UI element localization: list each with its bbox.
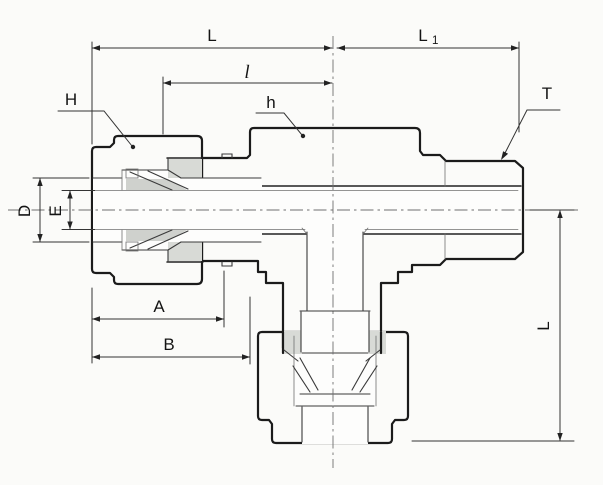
dim-label-L1-subscript: 1	[432, 35, 438, 47]
dim-label-l-inner: l	[244, 62, 249, 83]
dim-label-D: D	[15, 205, 34, 217]
branch-exit-bore	[302, 404, 368, 444]
dim-label-L-top: L	[207, 26, 216, 45]
body-neck-bottom	[168, 242, 202, 261]
leader-dot-H	[131, 145, 135, 149]
tee-fitting-drawing: L l L 1 H h T D	[0, 0, 603, 485]
dim-label-B: B	[163, 335, 174, 354]
branch-bore-hole	[307, 228, 363, 312]
dim-label-L-right: L	[534, 321, 553, 330]
callout-label-h: h	[266, 93, 275, 112]
branch-socket-hole	[301, 311, 369, 354]
callout-label-T: T	[542, 84, 552, 103]
technical-drawing-page: L l L 1 H h T D	[0, 0, 603, 485]
dim-label-E: E	[46, 205, 65, 216]
branch-neck-wall-right	[369, 331, 386, 354]
dim-label-A: A	[153, 297, 165, 316]
leader-dot-h	[301, 134, 305, 138]
body-neck-top	[168, 159, 202, 178]
callout-label-H: H	[65, 90, 77, 109]
dim-label-L1: L	[418, 26, 427, 45]
branch-neck-wall-left	[284, 331, 301, 354]
